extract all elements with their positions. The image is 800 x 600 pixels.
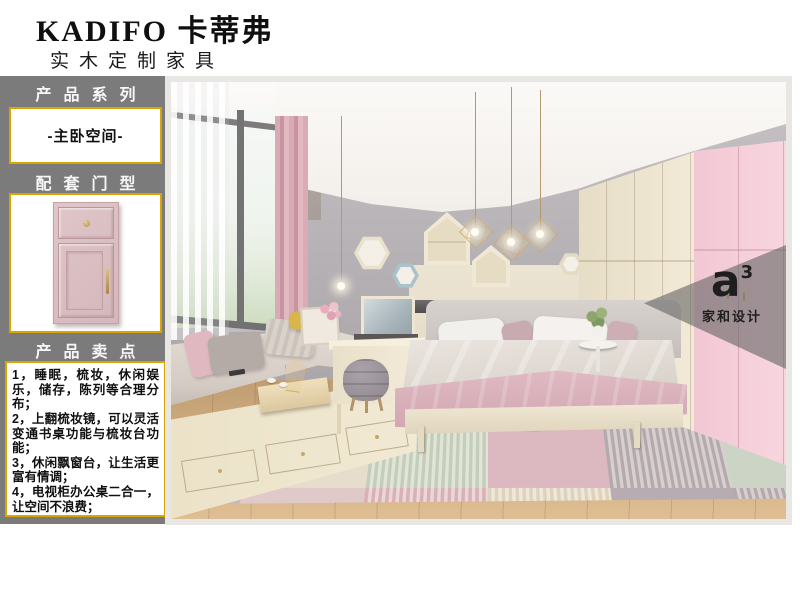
hexagon-shelf-interior-3 — [563, 256, 579, 272]
dresser-leg — [337, 404, 341, 434]
hexagon-shelf-interior-2 — [396, 266, 415, 285]
bed-leg — [418, 426, 424, 452]
bedroom-photo: a3 家和设计 — [165, 76, 792, 525]
pink-flowers — [317, 300, 343, 326]
pillow-gray — [207, 330, 266, 375]
pouf-stool — [343, 359, 389, 401]
selling-point-3: 3，休闲飘窗台，让生活更富有情调； — [12, 456, 159, 485]
bedroom-scene: a3 家和设计 — [171, 82, 786, 519]
points-section-label: 产品卖点 — [0, 338, 171, 362]
selling-point-2: 2，上翻梳妆镜，可以灵活变通书桌功能与梳妆台功能； — [12, 412, 159, 456]
watermark: a3 家和设计 — [679, 260, 785, 325]
door-section-label: 配套门型 — [0, 170, 171, 194]
pink-curtain — [275, 116, 308, 340]
door-drawer — [58, 207, 114, 239]
sidebar: 产品系列 -主卧空间- 配套门型 产品卖点 1，睡眠，梳妆，休闲娱乐，储存，陈列… — [0, 76, 171, 524]
door-knob — [83, 220, 90, 227]
seat-drawer — [181, 449, 259, 492]
selling-point-1: 1，睡眠，梳妆，休闲娱乐，储存，陈列等合理分布； — [12, 368, 159, 412]
seat-drawer — [265, 434, 341, 475]
series-section-label: 产品系列 — [0, 81, 171, 105]
sheer-curtain — [171, 82, 229, 340]
series-value: -主卧空间- — [48, 125, 124, 146]
potted-plant — [583, 304, 613, 340]
house-shelf-divider — [428, 241, 466, 243]
door-panel-frame — [66, 251, 103, 310]
door-panel — [58, 243, 114, 318]
pendant-cord — [540, 90, 541, 233]
bed-leg — [634, 422, 640, 448]
watermark-superscript: 3 — [741, 262, 754, 283]
pendant-bulb-icon — [337, 282, 345, 290]
cabinet-door-graphic — [53, 202, 119, 324]
house-shelf-interior — [428, 218, 466, 261]
house-shelf-interior-2 — [476, 251, 506, 283]
brand-name: KADIFO 卡蒂弗 — [36, 6, 274, 50]
door-handle — [106, 268, 109, 294]
pouf-leg — [365, 400, 368, 413]
pendant-cord — [511, 87, 512, 240]
pendant-cord — [475, 92, 476, 230]
door-image-box — [9, 193, 162, 333]
brand-tagline: 实木定制家具 — [50, 46, 224, 73]
side-table-leg — [596, 346, 600, 372]
pendant-bulb-icon — [536, 230, 544, 238]
sheer-curtain-right — [229, 82, 275, 332]
selling-points-box: 1，睡眠，梳妆，休闲娱乐，储存，陈列等合理分布； 2，上翻梳妆镜，可以灵活变通书… — [5, 361, 166, 517]
tea-cup — [267, 378, 276, 383]
watermark-caption: 家和设计 — [679, 306, 785, 325]
pendant-cord — [341, 116, 342, 284]
series-value-box: -主卧空间- — [9, 107, 162, 164]
selling-point-4: 4，电视柜办公桌二合一，让空间不浪费； — [12, 485, 159, 514]
pendant-bulb-icon — [471, 228, 479, 236]
pendant-bulb-icon — [507, 238, 515, 246]
hexagon-shelf-interior — [358, 239, 386, 267]
watermark-logo: a3 — [679, 260, 785, 304]
